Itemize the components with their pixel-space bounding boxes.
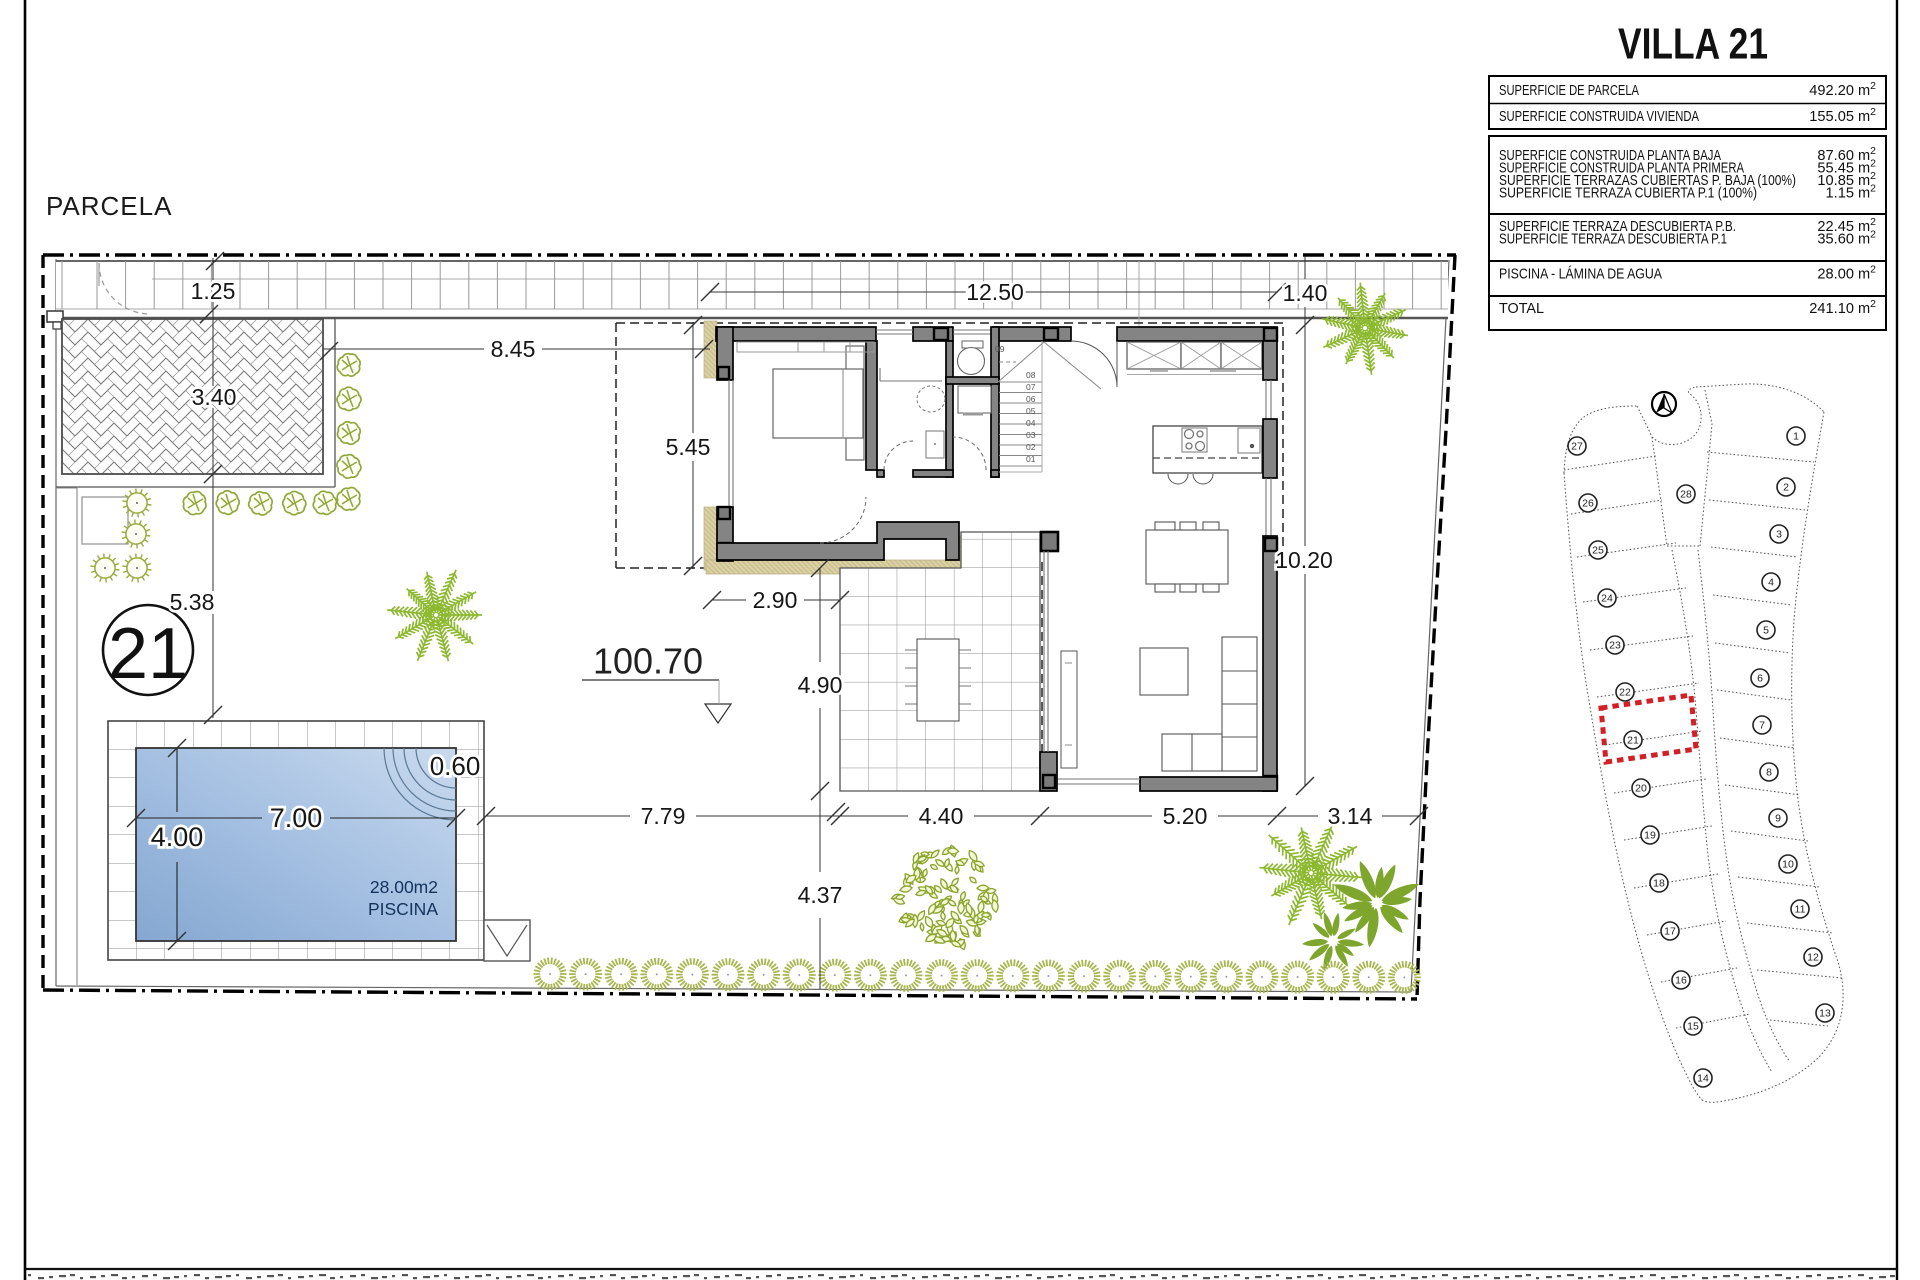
svg-text:28.00m2: 28.00m2 xyxy=(370,877,438,897)
svg-text:5.20: 5.20 xyxy=(1163,803,1208,829)
svg-text:2.90: 2.90 xyxy=(753,587,798,613)
svg-text:8: 8 xyxy=(1766,767,1772,779)
svg-text:4.00: 4.00 xyxy=(151,822,204,852)
svg-text:SUPERFICIE DE PARCELA: SUPERFICIE DE PARCELA xyxy=(1499,83,1639,99)
svg-text:9: 9 xyxy=(1775,813,1781,825)
svg-text:23: 23 xyxy=(1609,640,1621,652)
svg-text:4.90: 4.90 xyxy=(798,672,843,698)
svg-text:7.79: 7.79 xyxy=(641,803,686,829)
svg-text:27: 27 xyxy=(1571,441,1583,453)
svg-text:14: 14 xyxy=(1697,1073,1709,1085)
svg-text:12.50: 12.50 xyxy=(966,279,1024,305)
svg-text:5: 5 xyxy=(1763,625,1769,637)
svg-text:24: 24 xyxy=(1601,593,1613,605)
svg-text:10: 10 xyxy=(1782,859,1794,871)
svg-text:06: 06 xyxy=(1026,394,1036,404)
svg-text:07: 07 xyxy=(1026,382,1036,392)
svg-text:7.00: 7.00 xyxy=(270,803,323,833)
svg-text:21: 21 xyxy=(108,614,188,694)
svg-text:TOTAL: TOTAL xyxy=(1499,301,1544,317)
svg-text:241.10 m2: 241.10 m2 xyxy=(1809,298,1876,317)
svg-text:100.70: 100.70 xyxy=(593,641,703,682)
svg-text:05: 05 xyxy=(1026,406,1036,416)
svg-text:13: 13 xyxy=(1819,1008,1831,1020)
svg-text:20: 20 xyxy=(1635,783,1647,795)
svg-text:28: 28 xyxy=(1680,489,1692,501)
svg-text:SUPERFICIE TERRAZA DESCUBIERTA: SUPERFICIE TERRAZA DESCUBIERTA P.1 xyxy=(1499,232,1727,248)
svg-text:3: 3 xyxy=(1776,529,1782,541)
svg-text:01: 01 xyxy=(1026,454,1036,464)
svg-text:2: 2 xyxy=(1783,482,1789,494)
svg-text:11: 11 xyxy=(1795,904,1806,916)
svg-text:5.45: 5.45 xyxy=(666,434,711,460)
svg-text:22: 22 xyxy=(1619,687,1631,699)
svg-text:19: 19 xyxy=(1644,830,1656,842)
svg-text:4: 4 xyxy=(1768,577,1774,589)
svg-text:17: 17 xyxy=(1664,926,1676,938)
svg-text:PARCELA: PARCELA xyxy=(46,191,172,221)
svg-text:18: 18 xyxy=(1653,878,1665,890)
svg-text:1: 1 xyxy=(1793,431,1799,443)
svg-text:25: 25 xyxy=(1592,545,1604,557)
svg-text:02: 02 xyxy=(1026,442,1036,452)
svg-text:492.20 m2: 492.20 m2 xyxy=(1809,80,1876,99)
svg-text:26: 26 xyxy=(1582,498,1594,510)
svg-text:15: 15 xyxy=(1687,1021,1699,1033)
svg-text:7: 7 xyxy=(1759,720,1765,732)
svg-text:35.60 m2: 35.60 m2 xyxy=(1817,229,1876,248)
svg-text:PISCINA - LÁMINA DE AGUA: PISCINA - LÁMINA DE AGUA xyxy=(1499,266,1662,283)
svg-text:5.38: 5.38 xyxy=(170,589,215,615)
svg-text:PISCINA: PISCINA xyxy=(368,899,438,919)
svg-text:3.40: 3.40 xyxy=(192,384,237,410)
svg-text:6: 6 xyxy=(1757,673,1763,685)
svg-text:8.45: 8.45 xyxy=(491,336,536,362)
svg-text:12: 12 xyxy=(1807,952,1819,964)
svg-text:1.40: 1.40 xyxy=(1283,280,1328,306)
svg-text:08: 08 xyxy=(1026,370,1036,380)
svg-text:155.05 m2: 155.05 m2 xyxy=(1809,106,1876,125)
svg-text:16: 16 xyxy=(1675,975,1687,987)
svg-text:4.37: 4.37 xyxy=(798,882,843,908)
svg-text:3.14: 3.14 xyxy=(1328,803,1373,829)
svg-text:09: 09 xyxy=(995,344,1005,354)
svg-text:04: 04 xyxy=(1026,418,1036,428)
svg-text:10.20: 10.20 xyxy=(1275,547,1333,573)
svg-text:1.15 m2: 1.15 m2 xyxy=(1826,183,1877,202)
svg-text:SUPERFICIE CONSTRUIDA VIVIENDA: SUPERFICIE CONSTRUIDA VIVIENDA xyxy=(1499,109,1699,125)
svg-text:SUPERFICIE TERRAZA CUBIERTA P.: SUPERFICIE TERRAZA CUBIERTA P.1 (100%) xyxy=(1499,186,1757,202)
svg-text:03: 03 xyxy=(1026,430,1036,440)
svg-text:1.25: 1.25 xyxy=(191,278,236,304)
svg-text:0.60: 0.60 xyxy=(430,751,481,781)
svg-text:21: 21 xyxy=(1627,735,1639,747)
svg-text:4.40: 4.40 xyxy=(919,803,964,829)
svg-text:28.00 m2: 28.00 m2 xyxy=(1817,264,1876,283)
svg-text:VILLA 21: VILLA 21 xyxy=(1618,20,1768,69)
